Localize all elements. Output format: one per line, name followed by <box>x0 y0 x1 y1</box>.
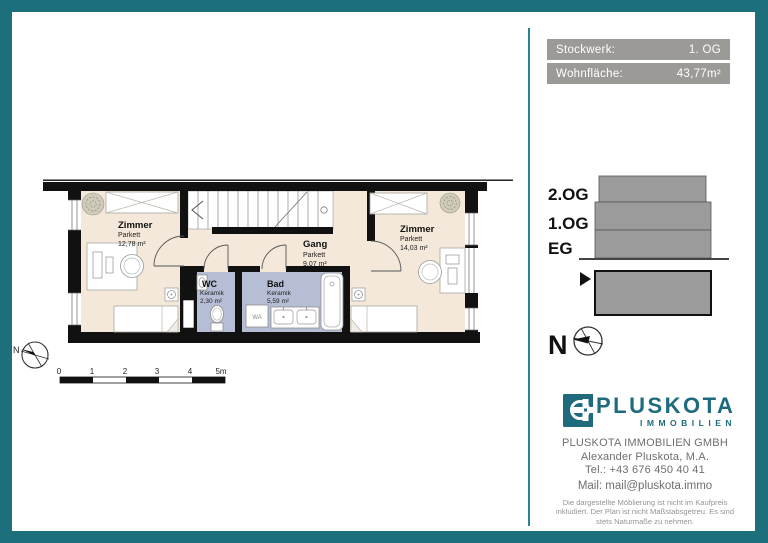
level-label-1og: 1.OG <box>548 214 589 233</box>
wohnflaeche-bar: Wohnfläche: 43,77m² <box>547 63 730 84</box>
room-label-zimmer-right: Zimmer <box>400 224 435 235</box>
scale-tick-2: 2 <box>123 367 128 376</box>
scale-bar: 0 1 2 3 4 5m <box>57 367 227 383</box>
washer-label: WA <box>252 315 261 321</box>
room-label-gang: Gang <box>303 239 327 250</box>
plant-symbol-left <box>82 193 104 215</box>
wardrobe-symbol-left <box>106 192 178 213</box>
toilet-symbol <box>211 306 224 332</box>
washing-machine-symbol: WA <box>246 305 268 327</box>
stockwerk-value: 1. OG <box>689 44 721 56</box>
logo-wordmark: PLUSKOTA <box>596 393 735 419</box>
window-right-bottom <box>465 308 478 330</box>
room-area-wc: 2,30 m² <box>200 298 223 305</box>
plant-symbol-right <box>440 193 460 213</box>
north-label-plan: N <box>13 345 20 355</box>
scale-tick-0: 0 <box>57 367 62 376</box>
window-right-mid <box>465 248 478 293</box>
room-floor-wc: Keramik <box>200 290 225 297</box>
wohnflaeche-value: 43,77m² <box>677 68 721 80</box>
room-label-zimmer-left: Zimmer <box>118 220 153 231</box>
room-label-bad: Bad <box>267 279 284 289</box>
room-label-wc: WC <box>202 279 217 289</box>
window-left-bottom <box>68 293 81 325</box>
north-compass-panel: N <box>548 327 603 360</box>
desk-symbol-left <box>87 243 144 290</box>
room-area-zimmer-left: 12,78 m² <box>118 241 146 248</box>
stockwerk-label: Stockwerk: <box>556 44 615 56</box>
detector-symbol-left <box>165 288 178 301</box>
vanity-symbol <box>271 307 319 328</box>
phone-line: Tel.: +43 676 450 40 41 <box>533 464 757 478</box>
pluskota-logo-icon <box>563 393 593 429</box>
building-section: 2.OG 1.OG EG N <box>533 165 765 360</box>
logo: PLUSKOTA IMMOBILIEN <box>563 392 733 432</box>
level-label-eg: EG <box>548 239 573 258</box>
contact-person: Alexander Pluskota, M.A. <box>533 451 757 465</box>
panel-divider <box>528 28 530 526</box>
footprint-block <box>595 271 711 315</box>
window-left-top <box>68 200 81 230</box>
bed-symbol-left <box>114 306 178 332</box>
bathtub-symbol <box>321 273 343 330</box>
staircase-symbol <box>188 191 333 229</box>
mail-line: Mail: mail@pluskota.immo <box>533 479 757 493</box>
logo-subtitle: IMMOBILIEN <box>640 418 736 428</box>
contact-block: PLUSKOTA IMMOBILIEN GMBH Alexander Plusk… <box>533 437 757 527</box>
bed-symbol-right <box>351 306 417 332</box>
disclaimer-text: Die dargestellte Möblierung ist nicht im… <box>555 498 735 528</box>
section-block-1og <box>595 202 711 230</box>
position-arrow-icon <box>580 272 591 286</box>
scale-tick-3: 3 <box>155 367 160 376</box>
room-floor-gang: Parkett <box>303 252 325 259</box>
wohnflaeche-label: Wohnfläche: <box>556 68 623 80</box>
room-floor-zimmer-left: Parkett <box>118 232 140 239</box>
room-floor-bad: Keramik <box>267 290 292 297</box>
north-label-panel: N <box>548 330 568 360</box>
scale-tick-5: 5m <box>215 367 226 376</box>
north-compass-plan: N <box>13 342 49 368</box>
window-right-top <box>465 213 478 245</box>
scale-tick-4: 4 <box>188 367 193 376</box>
stockwerk-bar: Stockwerk: 1. OG <box>547 39 730 60</box>
level-label-2og: 2.OG <box>548 185 589 204</box>
company-name: PLUSKOTA IMMOBILIEN GMBH <box>533 437 757 451</box>
detector-symbol-right <box>352 288 365 301</box>
section-block-2og <box>599 176 706 202</box>
north-needle-panel-icon <box>573 336 590 344</box>
wardrobe-symbol-right <box>370 193 427 214</box>
floorplan-drawing: WA Zimmer Parkett 12,78 m² Gang <box>5 155 520 385</box>
shaft-niche <box>183 300 194 328</box>
floorplan-page: Stockwerk: 1. OG Wohnfläche: 43,77m² <box>0 0 768 543</box>
section-block-eg <box>595 230 711 258</box>
room-floor-zimmer-right: Parkett <box>400 236 422 243</box>
room-area-gang: 9,07 m² <box>303 261 327 268</box>
room-area-zimmer-right: 14,03 m² <box>400 245 428 252</box>
room-area-bad: 5,59 m² <box>267 298 290 305</box>
scale-tick-1: 1 <box>90 367 95 376</box>
